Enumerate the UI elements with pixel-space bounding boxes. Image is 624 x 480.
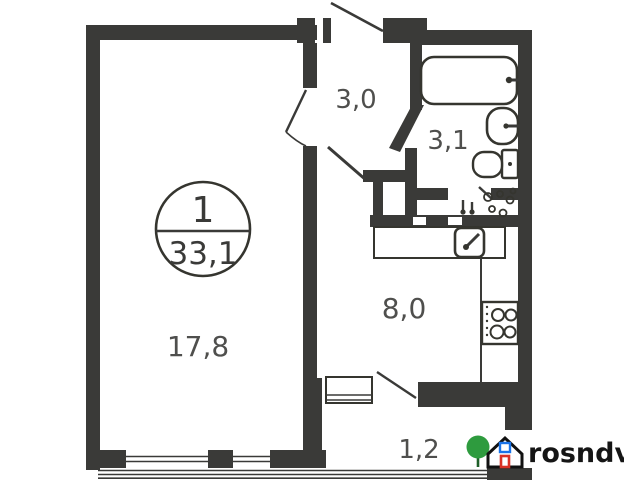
facade-glazing-lines bbox=[98, 471, 487, 479]
kitchen-door-icon bbox=[328, 147, 366, 180]
wall-bath-top bbox=[418, 30, 532, 45]
wall-balcony-right-stub bbox=[505, 407, 532, 430]
apartment-stamp: 1 33,1 bbox=[156, 182, 250, 276]
kitchen-counter-icon bbox=[374, 227, 505, 258]
window-gap-1 bbox=[126, 450, 208, 468]
wall-top-main bbox=[86, 25, 317, 40]
wall-bottom-right-bar bbox=[487, 468, 532, 480]
entrance-door-icon bbox=[331, 3, 383, 31]
balcony-area-label: 1,2 bbox=[398, 435, 439, 465]
wall-kitchen-top-band bbox=[370, 215, 518, 227]
house-icon bbox=[488, 438, 522, 467]
watermark: rosndv.ru bbox=[467, 436, 624, 470]
logo-icon bbox=[467, 436, 523, 468]
bathtub-icon bbox=[421, 57, 521, 104]
wall-entry-jamb-b bbox=[323, 18, 331, 43]
kitchen-area-label: 8,0 bbox=[382, 292, 427, 325]
balcony-door-icon bbox=[377, 372, 416, 398]
living-room-area-label: 17,8 bbox=[167, 330, 229, 363]
stamp-rooms-count: 1 bbox=[192, 190, 215, 231]
wall-outer-right bbox=[518, 30, 532, 383]
stove-icon bbox=[482, 302, 518, 344]
living-room-door-icon bbox=[286, 90, 306, 146]
wall-kitchen-bottom bbox=[418, 382, 532, 407]
wall-entry-jamb-a bbox=[297, 18, 315, 43]
wall-hall-kitchen-band bbox=[363, 170, 408, 182]
tree-icon bbox=[467, 436, 490, 468]
kitchen-sink-icon bbox=[455, 228, 484, 257]
window-gap-2 bbox=[233, 450, 270, 468]
wall-living-right-mid bbox=[303, 146, 317, 378]
wall-bath-bottom-left bbox=[417, 188, 448, 200]
floor-plan-page: 1 33,1 17,8 3,0 3,1 8,0 1,2 rosndv.ru bbox=[0, 0, 624, 480]
wall-left bbox=[86, 25, 100, 470]
toilet-icon bbox=[473, 150, 518, 178]
watermark-text: rosndv.ru bbox=[528, 438, 624, 469]
balcony-door-block-icon bbox=[326, 377, 372, 403]
wall-slot-1 bbox=[413, 217, 426, 225]
wash-basin-icon bbox=[487, 108, 520, 144]
stamp-total-area: 33,1 bbox=[168, 236, 237, 272]
wall-bath-angled bbox=[389, 105, 424, 152]
floor-plan: 1 33,1 17,8 3,0 3,1 8,0 1,2 rosndv.ru bbox=[0, 0, 624, 480]
bathroom-area-label: 3,1 bbox=[427, 126, 468, 156]
wall-living-right-top bbox=[303, 43, 317, 88]
hallway-area-label: 3,0 bbox=[335, 85, 376, 115]
wall-slot-2 bbox=[448, 217, 462, 225]
